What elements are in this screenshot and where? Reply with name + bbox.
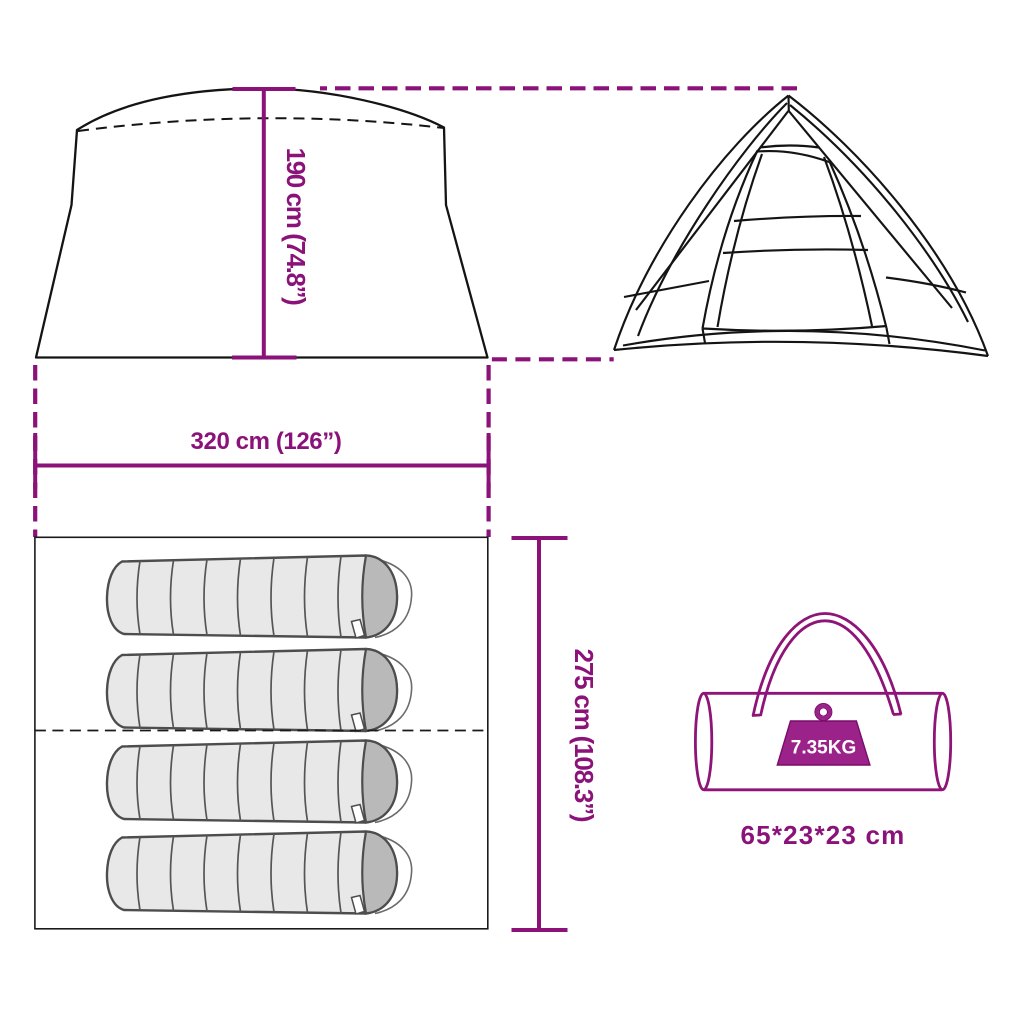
svg-text:320 cm (126”): 320 cm (126”) <box>191 428 342 455</box>
svg-text:275 cm (108.3”): 275 cm (108.3”) <box>569 649 599 822</box>
svg-text:190 cm (74.8”): 190 cm (74.8”) <box>281 148 311 305</box>
svg-text:7.35KG: 7.35KG <box>791 738 856 759</box>
svg-text:65*23*23 cm: 65*23*23 cm <box>741 820 906 850</box>
